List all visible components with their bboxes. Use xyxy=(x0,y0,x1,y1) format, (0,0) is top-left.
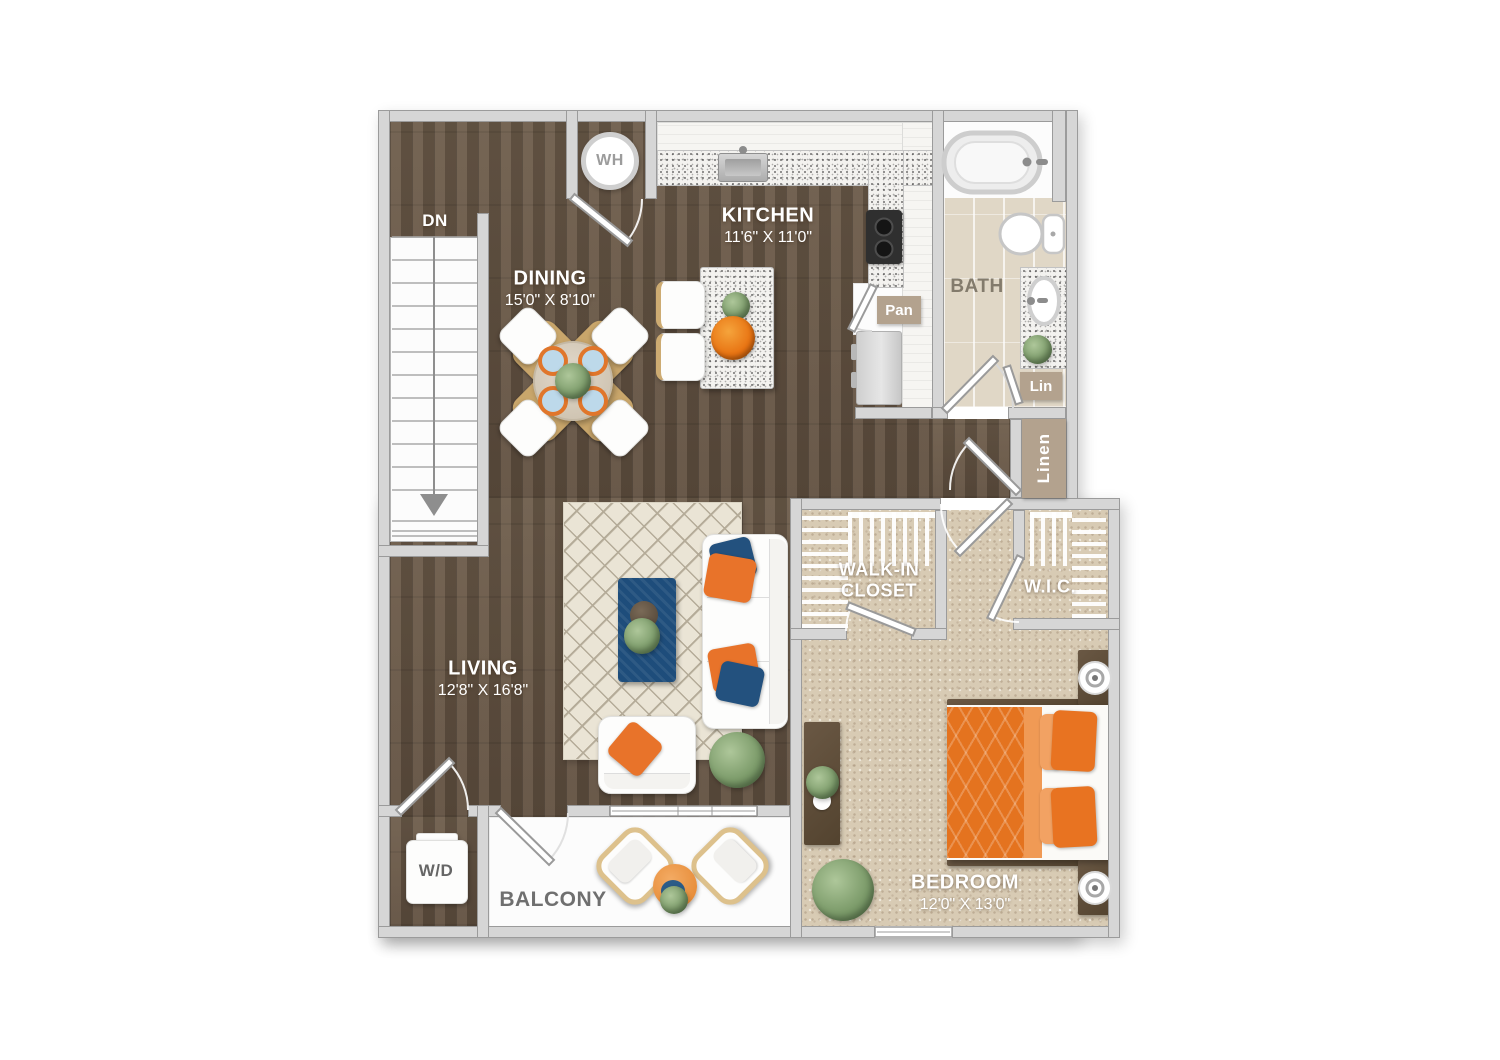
dining-dims: 15'0" X 8'10" xyxy=(505,292,595,310)
sofa-backrest xyxy=(769,539,787,724)
wall xyxy=(911,628,947,640)
kitchen-dims: 11'6" X 11'0" xyxy=(724,229,812,247)
refrigerator xyxy=(856,331,902,405)
linen-closet-box: Linen xyxy=(1022,419,1066,498)
living-dims: 12'8" X 16'8" xyxy=(438,682,528,700)
wall xyxy=(757,805,790,817)
living-label: LIVING xyxy=(448,658,518,681)
washer-dryer-label: W/D xyxy=(419,861,454,881)
wall xyxy=(790,498,802,938)
kitchen-label: KITCHEN xyxy=(722,205,814,228)
nightstand xyxy=(1078,860,1112,915)
walk-in-closet-label-line1: WALK-IN xyxy=(839,560,919,581)
bath-label: BATH xyxy=(950,276,1003,298)
fridge-handle xyxy=(851,372,857,388)
wall xyxy=(378,545,489,557)
wall xyxy=(477,213,489,557)
wall xyxy=(645,110,657,199)
linen-closet-label: Linen xyxy=(1034,433,1054,483)
linen-small-box: Lin xyxy=(1020,372,1062,400)
wall xyxy=(1052,110,1066,202)
wall xyxy=(1008,407,1066,419)
wood-floor-hall xyxy=(932,419,1010,498)
table-centerpiece-plant xyxy=(555,363,591,399)
wall xyxy=(952,926,1120,938)
walk-in-closet-label-line2: CLOSET xyxy=(841,581,917,602)
closet-hanging-rods xyxy=(848,512,935,566)
wall xyxy=(932,110,944,419)
balcony-label: BALCONY xyxy=(499,888,606,912)
wall xyxy=(378,110,1078,122)
kitchen-sink xyxy=(718,153,768,182)
bath-tub-floor xyxy=(943,122,1052,198)
bath-plant xyxy=(1023,335,1052,364)
stairs-down-label: DN xyxy=(422,211,448,231)
wall xyxy=(1013,510,1025,560)
wic-shelves xyxy=(1072,512,1106,618)
wic-label: W.I.C. xyxy=(1024,577,1076,598)
pantry-label: Pan xyxy=(885,302,913,319)
wall xyxy=(790,628,847,640)
wall xyxy=(566,110,578,199)
wall xyxy=(567,805,610,817)
wall xyxy=(1066,110,1078,510)
stove-cooktop xyxy=(866,210,902,264)
chair-cushion xyxy=(710,836,759,885)
fridge-handle xyxy=(851,344,857,360)
coffee-table-plant xyxy=(624,618,660,654)
wall xyxy=(477,805,489,938)
nightstand xyxy=(1078,650,1112,705)
bedroom-label: BEDROOM xyxy=(911,872,1019,895)
stairwell xyxy=(390,237,479,542)
wall xyxy=(1013,618,1120,630)
wall xyxy=(1010,419,1022,498)
sink-basin xyxy=(725,159,761,176)
living-plant xyxy=(709,732,765,788)
wall xyxy=(1007,498,1120,510)
desk-plant xyxy=(806,766,839,799)
sofa-pillow-orange xyxy=(703,552,758,604)
bed-pillow-orange xyxy=(1050,786,1097,848)
wic-hanging-rods xyxy=(1030,512,1072,566)
wall xyxy=(855,407,932,419)
wall xyxy=(1108,498,1120,938)
bed-blanket xyxy=(947,707,1024,858)
bedroom-dims: 12'0" X 13'0" xyxy=(920,896,1010,914)
balcony-plant xyxy=(660,886,688,914)
linen-small-label: Lin xyxy=(1030,378,1053,395)
wall xyxy=(935,510,947,640)
wall xyxy=(790,498,941,510)
island-chair xyxy=(656,281,705,329)
floor-plan: Pan Lin Linen DINING 15'0" X 8'10" KITCH… xyxy=(0,0,1500,1060)
island-chair xyxy=(656,333,705,381)
bedroom-plant xyxy=(812,859,874,921)
dining-label: DINING xyxy=(514,268,587,291)
fruit-bowl xyxy=(711,316,755,360)
wall xyxy=(378,805,402,817)
wall xyxy=(932,407,948,419)
pantry-label-box: Pan xyxy=(877,296,921,324)
water-heater-label: WH xyxy=(596,152,624,170)
bed-pillow-orange xyxy=(1050,710,1097,772)
chair-cushion xyxy=(605,836,654,885)
armchair-front xyxy=(604,773,690,789)
